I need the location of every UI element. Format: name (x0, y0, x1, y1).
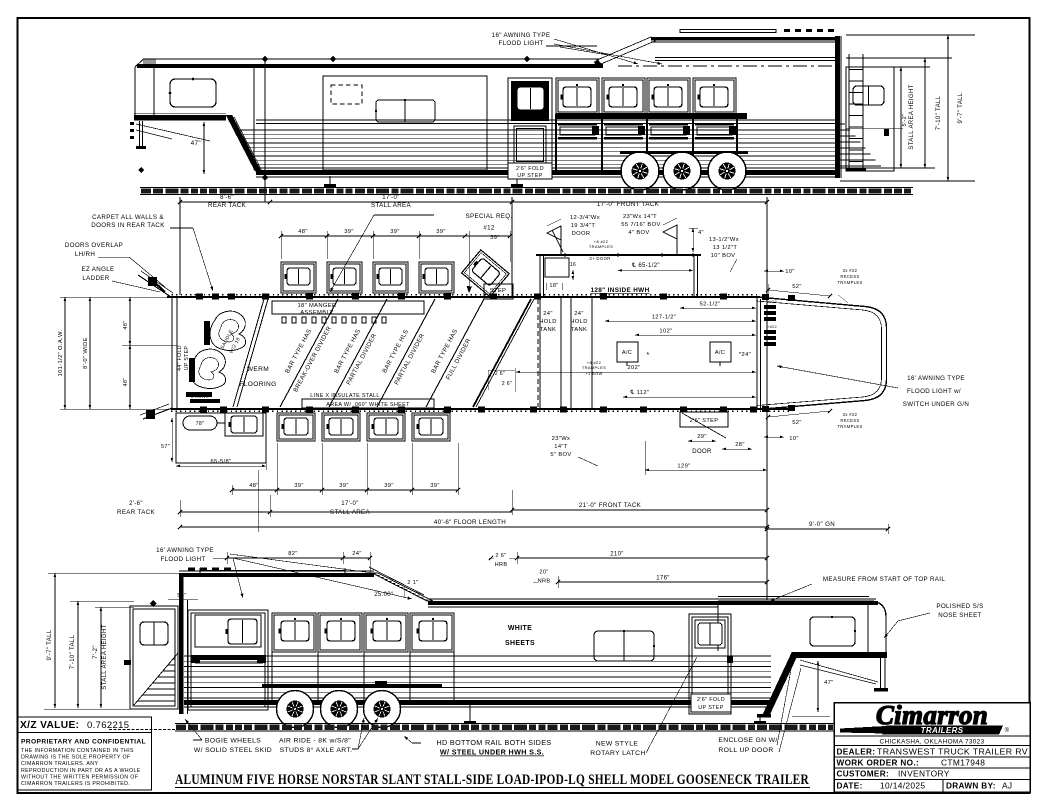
svg-text:52": 52" (792, 284, 802, 290)
svg-text:THE INFORMATION CONTAINED IN T: THE INFORMATION CONTAINED IN THIS (21, 748, 134, 754)
svg-text:UP STEP: UP STEP (698, 705, 723, 711)
svg-text:2'-6": 2'-6" (129, 501, 143, 507)
svg-text:2 1": 2 1" (407, 580, 418, 586)
svg-text:REAR TACK: REAR TACK (117, 509, 156, 516)
svg-text:W/ SOLID STEEL SKID: W/ SOLID STEEL SKID (194, 747, 272, 754)
svg-text:STALL AREA HEIGHT: STALL AREA HEIGHT (102, 624, 108, 689)
svg-text:FLOOD LIGHT: FLOOD LIGHT (498, 40, 543, 47)
svg-text:+1 BOW: +1 BOW (585, 371, 602, 376)
svg-text:CIMARRON TRAILERS. ANY: CIMARRON TRAILERS. ANY (21, 761, 98, 767)
svg-text:5" BOV: 5" BOV (550, 452, 571, 458)
svg-text:21'-0" FRONT TACK: 21'-0" FRONT TACK (579, 502, 642, 509)
svg-text:8'-6": 8'-6" (220, 195, 234, 201)
svg-text:23"Wx 14"T: 23"Wx 14"T (623, 214, 657, 220)
svg-text:HOLD: HOLD (570, 319, 588, 325)
svg-text:RECESS: RECESS (840, 274, 859, 279)
svg-text:39": 39" (344, 229, 354, 235)
svg-text:HRB: HRB (495, 562, 508, 568)
svg-text:16" AWNING TYPE: 16" AWNING TYPE (492, 32, 551, 39)
svg-text:WITHOUT THE WRITTEN PERMISSION: WITHOUT THE WRITTEN PERMISSION OF (21, 774, 139, 780)
svg-text:5'-2": 5'-2" (902, 114, 908, 127)
svg-text:48": 48" (249, 483, 259, 489)
svg-text:176": 176" (656, 576, 670, 582)
svg-text:19 3/4"T: 19 3/4"T (571, 223, 596, 229)
svg-text:52": 52" (792, 420, 802, 426)
svg-text:48": 48" (298, 229, 308, 235)
svg-text:47": 47" (191, 140, 201, 147)
svg-text:INVENTORY: INVENTORY (898, 769, 950, 779)
svg-text:ROLL UP DOOR: ROLL UP DOOR (718, 747, 773, 754)
svg-text:#12: #12 (483, 225, 495, 232)
svg-text:13 1/2"T: 13 1/2"T (713, 245, 738, 251)
svg-text:39": 39" (294, 483, 304, 489)
svg-text:39": 39" (436, 229, 446, 235)
svg-text:28": 28" (735, 442, 745, 448)
svg-text:HOLD: HOLD (539, 319, 557, 325)
svg-text:WORK ORDER NO.:: WORK ORDER NO.: (837, 759, 920, 768)
svg-text:TRAMPLES: TRAMPLES (582, 365, 606, 370)
svg-text:REPRODUCTION IN PART OR AS A W: REPRODUCTION IN PART OR AS A WHOLE (21, 768, 141, 774)
svg-text:102": 102" (659, 329, 672, 335)
svg-text:POLISHED S/S: POLISHED S/S (936, 603, 983, 610)
svg-text:SPECIAL REQ.: SPECIAL REQ. (466, 213, 513, 220)
svg-text:12-3/4"Wx: 12-3/4"Wx (570, 215, 600, 221)
svg-text:TRAILERS: TRAILERS (921, 726, 964, 735)
svg-text:RECESS: RECESS (840, 418, 859, 423)
svg-text:AIR RIDE - 8K w/S/8": AIR RIDE - 8K w/S/8" (279, 738, 351, 745)
svg-text:44" FOLD: 44" FOLD (177, 345, 183, 371)
svg-text:CTM17948: CTM17948 (941, 758, 985, 768)
svg-text:82": 82" (288, 551, 298, 557)
svg-text:DRAWN BY:: DRAWN BY: (946, 782, 996, 791)
svg-text:78": 78" (196, 421, 205, 427)
svg-text:2'6" FOLD: 2'6" FOLD (697, 697, 725, 703)
svg-text:WHITE: WHITE (508, 625, 532, 632)
svg-text:13-1/2"Wx: 13-1/2"Wx (709, 237, 739, 243)
svg-text:16' AWNING TYPE: 16' AWNING TYPE (156, 547, 214, 554)
svg-text:128" INSIDE HWH: 128" INSIDE HWH (590, 287, 649, 294)
svg-text:9'-7" TALL: 9'-7" TALL (47, 629, 53, 660)
svg-text:17'-0" FRONT TACK: 17'-0" FRONT TACK (597, 201, 660, 208)
svg-text:DATE:: DATE: (837, 782, 863, 791)
svg-text:4": 4" (698, 230, 704, 236)
svg-text:47": 47" (824, 680, 834, 686)
svg-text:48": 48" (123, 378, 129, 387)
svg-text:REAR TACK: REAR TACK (208, 202, 247, 209)
svg-text:14"T: 14"T (554, 444, 568, 450)
svg-text:CUSTOMER:: CUSTOMER: (837, 770, 890, 779)
svg-text:DOORS IN REAR TACK: DOORS IN REAR TACK (91, 222, 165, 229)
svg-text:UP STEP: UP STEP (517, 173, 542, 179)
svg-text:56": 56" (177, 593, 187, 599)
svg-text:STEP: STEP (490, 288, 507, 294)
svg-text:AREA W/ .060" WHITE SHEET: AREA W/ .060" WHITE SHEET (326, 402, 410, 408)
svg-text:+#22: +#22 (767, 300, 777, 304)
svg-text:3x #22: 3x #22 (843, 268, 858, 273)
svg-text:17'-0": 17'-0" (341, 501, 358, 507)
svg-text:TANK: TANK (540, 327, 556, 333)
svg-text:PROPRIETARY AND CONFIDENTIAL: PROPRIETARY AND CONFIDENTIAL (21, 739, 146, 746)
svg-text:X/Z VALUE:: X/Z VALUE: (20, 720, 79, 731)
svg-text:+#22: +#22 (767, 325, 777, 329)
svg-text:AJ: AJ (1002, 781, 1012, 791)
svg-text:2 6": 2 6" (502, 381, 512, 387)
svg-text:BOGIE WHEELS: BOGIE WHEELS (205, 738, 261, 745)
svg-text:®: ® (1005, 727, 1010, 734)
svg-text:7'-10" TALL: 7'-10" TALL (936, 95, 942, 130)
svg-text:3x #22: 3x #22 (843, 412, 858, 417)
svg-text:127-1/2": 127-1/2" (652, 315, 677, 321)
svg-text:10": 10" (789, 436, 799, 442)
svg-text:HD BOTTOM RAIL BOTH SIDES: HD BOTTOM RAIL BOTH SIDES (437, 738, 552, 747)
svg-text:65-5/8": 65-5/8" (211, 459, 232, 465)
svg-text:10/14/2025: 10/14/2025 (880, 781, 925, 791)
svg-text:STUDS 8° AXLE ART.: STUDS 8° AXLE ART. (280, 746, 353, 754)
svg-text:ROTARY LATCH: ROTARY LATCH (590, 750, 645, 757)
svg-text:A/C: A/C (622, 350, 632, 356)
svg-text:8 ROWS: 8 ROWS (191, 394, 209, 399)
svg-text:18" MANGER: 18" MANGER (297, 303, 336, 309)
svg-text:39": 39" (384, 483, 394, 489)
svg-text:2 6": 2 6" (495, 371, 505, 377)
svg-text:2'6" STEP: 2'6" STEP (690, 418, 719, 424)
svg-text:STALL AREA: STALL AREA (330, 509, 370, 516)
svg-text:2 6": 2 6" (495, 553, 506, 559)
svg-text:57": 57" (161, 444, 170, 450)
svg-text:TRAMPLES: TRAMPLES (589, 244, 613, 249)
svg-text:18": 18" (549, 283, 558, 289)
svg-text:24": 24" (352, 551, 362, 557)
svg-text:℄ 65-1/2": ℄ 65-1/2" (631, 263, 660, 269)
svg-text:CHICKASHA, OKLAHOMA 73023: CHICKASHA, OKLAHOMA 73023 (879, 739, 984, 746)
svg-text:55 7/16" BOV: 55 7/16" BOV (621, 222, 660, 228)
svg-text:FLOOD LIGHT: FLOOD LIGHT (160, 556, 205, 563)
svg-text:A/C: A/C (715, 350, 725, 356)
svg-text:40'-6" FLOOR LENGTH: 40'-6" FLOOR LENGTH (434, 519, 506, 526)
svg-text:DOOR: DOOR (572, 231, 591, 237)
svg-text:DEALER:: DEALER: (837, 748, 876, 757)
svg-text:129": 129" (677, 464, 690, 470)
svg-text:ASSEMBLY: ASSEMBLY (300, 310, 334, 316)
svg-text:TANK: TANK (571, 327, 587, 333)
svg-text:23"Wx: 23"Wx (552, 436, 571, 442)
svg-text:NRB: NRB (538, 579, 551, 585)
svg-text:16: 16 (570, 262, 576, 268)
svg-text:16' AWNING TYPE: 16' AWNING TYPE (907, 375, 965, 382)
svg-text:39": 39" (430, 483, 440, 489)
svg-text:CIMARRON TRAILERS IS PROHIBITE: CIMARRON TRAILERS IS PROHIBITED. (21, 781, 130, 787)
svg-text:202": 202" (627, 365, 640, 371)
svg-text:39": 39" (490, 235, 500, 241)
svg-text:FLOOD LIGHT w/: FLOOD LIGHT w/ (907, 388, 961, 395)
svg-text:CARPET ALL WALLS &: CARPET ALL WALLS & (92, 214, 164, 221)
svg-text:ENCLOSE GN W/: ENCLOSE GN W/ (718, 737, 777, 744)
svg-text:4" BOV: 4" BOV (628, 230, 649, 236)
svg-text:8'-0" WIDE: 8'-0" WIDE (83, 337, 89, 369)
svg-text:52-1/2": 52-1/2" (700, 302, 721, 308)
svg-text:7'-10" TALL: 7'-10" TALL (70, 634, 76, 669)
svg-text:7'-2": 7'-2" (93, 645, 99, 659)
svg-text:210": 210" (610, 552, 624, 558)
svg-text:SWITCH UNDER G/N: SWITCH UNDER G/N (903, 401, 969, 408)
svg-text:10" BOV: 10" BOV (711, 253, 736, 259)
svg-text:24": 24" (543, 311, 553, 317)
svg-text:TRAMPLES: TRAMPLES (837, 424, 862, 429)
svg-text:FLOORING: FLOORING (239, 381, 276, 388)
svg-text:3+ DOOR: 3+ DOOR (589, 256, 610, 261)
svg-text:NOSE SHEET: NOSE SHEET (938, 612, 981, 619)
svg-text:ALUMINUM FIVE HORSE NORSTAR SL: ALUMINUM FIVE HORSE NORSTAR SLANT STALL-… (175, 772, 809, 788)
svg-text:STALL AREA: STALL AREA (371, 202, 411, 209)
svg-text:39": 39" (390, 229, 400, 235)
svg-text:STALL AREA HEIGHT: STALL AREA HEIGHT (909, 84, 915, 149)
svg-text:MEASURE FROM START OF TOP RAIL: MEASURE FROM START OF TOP RAIL (823, 576, 945, 583)
svg-text:SHEETS: SHEETS (505, 640, 535, 647)
svg-text:DOOR: DOOR (692, 449, 712, 455)
svg-text:2'6" FOLD: 2'6" FOLD (516, 166, 544, 172)
svg-text:101-1/2" O.A.W.: 101-1/2" O.A.W. (58, 329, 64, 376)
svg-text:EZ ANGLE: EZ ANGLE (81, 266, 114, 273)
svg-text:9'-7" TALL: 9'-7" TALL (958, 92, 964, 123)
svg-text:℄ 112": ℄ 112" (630, 390, 650, 396)
svg-text:W/ STEEL UNDER HWH S.S.: W/ STEEL UNDER HWH S.S. (440, 748, 544, 757)
svg-text:DOORS OVERLAP: DOORS OVERLAP (65, 242, 123, 249)
svg-text:39": 39" (339, 483, 349, 489)
svg-text:17'-0": 17'-0" (382, 195, 399, 201)
svg-text:LINE X INSULATE STALL: LINE X INSULATE STALL (310, 393, 379, 399)
svg-text:*24": *24" (739, 352, 751, 358)
svg-text:WERM: WERM (247, 366, 269, 373)
svg-text:10": 10" (785, 269, 795, 275)
svg-text:29": 29" (697, 434, 707, 440)
svg-text:TRANSWEST TRUCK TRAILER RV: TRANSWEST TRUCK TRAILER RV (877, 747, 1028, 757)
svg-text:LADDER: LADDER (82, 275, 109, 282)
svg-text:NEW STYLE: NEW STYLE (596, 741, 639, 748)
svg-text:DRAWING IS THE SOLE PROPERTY O: DRAWING IS THE SOLE PROPERTY OF (21, 755, 131, 761)
svg-text:20": 20" (539, 570, 548, 576)
svg-text:*: * (646, 350, 649, 359)
svg-text:48": 48" (123, 321, 129, 330)
svg-text:LH/RH: LH/RH (75, 251, 95, 258)
svg-text:9'-0" GN: 9'-0" GN (809, 521, 835, 528)
svg-text:24": 24" (574, 311, 584, 317)
svg-text:TRAMPLES: TRAMPLES (837, 280, 862, 285)
svg-text:25.00°: 25.00° (374, 592, 394, 598)
